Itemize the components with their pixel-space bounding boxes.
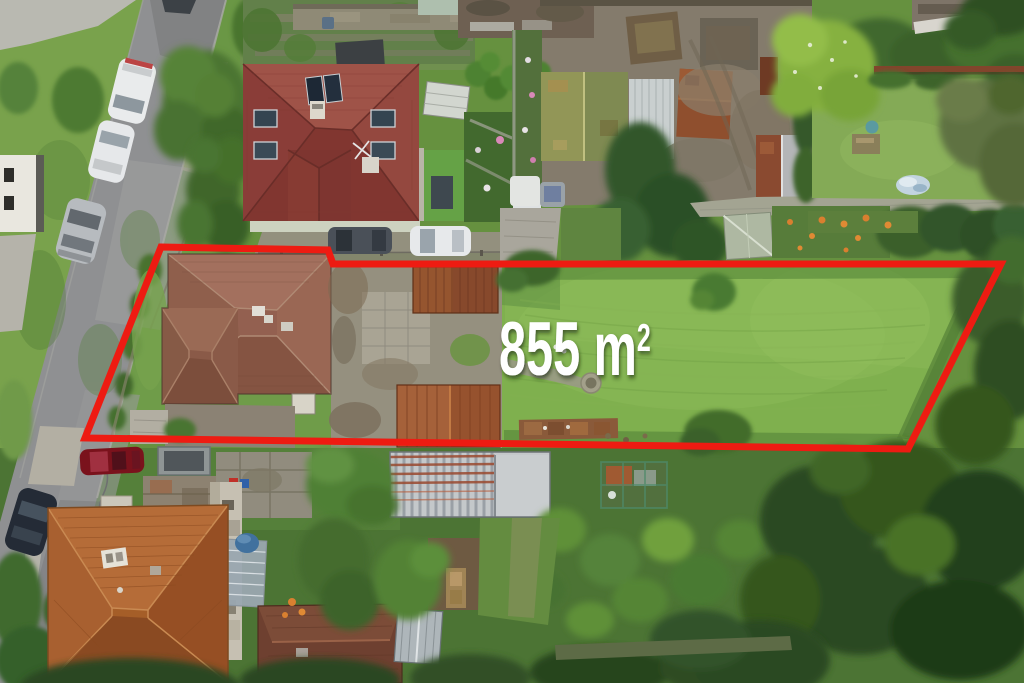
svg-text:855 m2: 855 m2 <box>499 306 651 392</box>
